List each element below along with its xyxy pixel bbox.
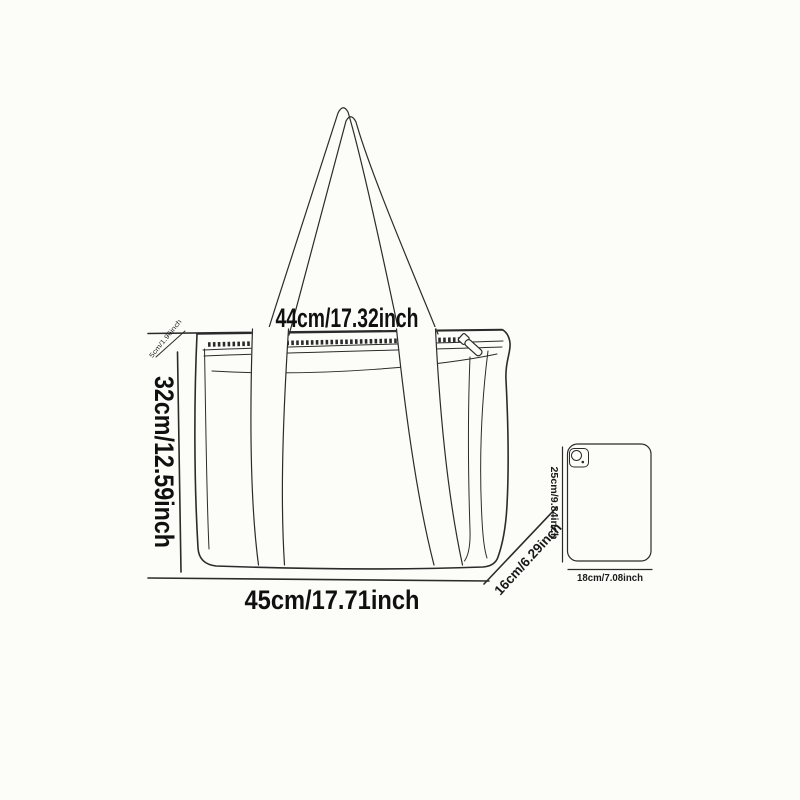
product-dimension-diagram: 44cm/17.32inch 32cm/12.59inch 45cm/17.71…	[0, 0, 800, 800]
dimension-label-top-width: 44cm/17.32inch	[276, 303, 419, 333]
bag-outline	[195, 330, 510, 569]
dimension-label-top-trim: 5cm/1.96inch	[148, 318, 183, 359]
tablet-camera-dot-icon	[582, 461, 585, 464]
diagram-canvas: 44cm/17.32inch 32cm/12.59inch 45cm/17.71…	[0, 0, 800, 800]
tablet-body	[568, 444, 652, 561]
right-seam-line	[481, 351, 488, 558]
dimension-line-bottom-width	[148, 578, 489, 581]
dimension-label-height: 32cm/12.59inch	[149, 376, 179, 548]
bag-straps	[250, 327, 463, 565]
dimension-label-bottom-width: 45cm/17.71inch	[245, 585, 420, 615]
left-seam-line	[205, 349, 210, 549]
tablet-camera-lens-icon	[572, 451, 582, 461]
bag-zipper	[197, 330, 503, 373]
bag-handles	[267, 108, 438, 335]
dimension-label-tablet-height: 25cm/9.84inch	[548, 467, 560, 540]
zipper-pull	[458, 333, 484, 358]
right-fold-line	[465, 357, 471, 561]
tablet-drawing	[563, 444, 653, 570]
dimension-label-tablet-width: 18cm/7.08inch	[577, 572, 643, 584]
